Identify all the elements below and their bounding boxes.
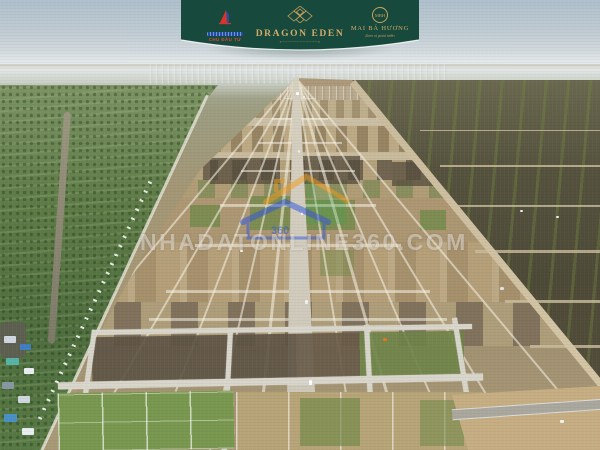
project-logo: DRAGON EDEN «────────────» [255, 6, 345, 44]
grass-plot [300, 398, 360, 446]
lattice-diamond [296, 16, 304, 23]
lattice-diamond [300, 11, 312, 21]
farm-hut-speck [556, 216, 559, 218]
vehicle-speck [298, 150, 300, 153]
building-speck [296, 92, 299, 95]
vehicle-speck [309, 380, 312, 385]
building-speck [303, 96, 305, 98]
house-roof [20, 344, 31, 350]
project-tagline: «────────────» [255, 40, 345, 44]
developer-caption: CHỦ ĐẦU TƯ [193, 37, 257, 42]
agency-name: MAI BÁ HƯƠNG [349, 25, 411, 32]
agency-tagline: Đơn vị phát triển [349, 33, 411, 38]
house-roof [18, 396, 30, 403]
brand-banner: CHỦ ĐẦU TƯ DRAGON EDEN «────────────» MB… [181, 0, 419, 58]
excavator-speck [383, 338, 387, 341]
aerial-photo: 360 NHADATONLINE360.COM CHỦ ĐẦU TƯ [0, 0, 600, 450]
farm-hut-speck [500, 287, 504, 290]
project-name: DRAGON EDEN [255, 29, 345, 39]
farm-hut-speck [520, 210, 523, 212]
circle-monogram-icon: MBH [372, 7, 388, 23]
house-roof [4, 336, 16, 343]
paddy-path [505, 300, 600, 303]
paddy-path [420, 130, 600, 131]
building-speck [560, 420, 564, 423]
monogram-letters: MBH [375, 13, 385, 18]
house-roof [24, 368, 34, 374]
house-roof [22, 428, 34, 435]
agency-logo: MBH MAI BÁ HƯƠNG Đơn vị phát triển [349, 7, 411, 38]
lattice-diamond [288, 11, 300, 21]
sail-base [219, 23, 231, 24]
developer-logo: CHỦ ĐẦU TƯ [193, 9, 257, 42]
house-roof [2, 382, 14, 389]
vehicle-speck [305, 300, 308, 304]
sail-logo-icon [218, 9, 232, 25]
watermark-site-text: NHADATONLINE360.COM [140, 229, 460, 256]
paddy-path [440, 165, 600, 167]
house-roof [4, 414, 17, 422]
lotus-lattice-icon [287, 6, 313, 23]
lawn-blocks [58, 390, 235, 450]
graded-mud-strip [92, 331, 465, 381]
developer-name-bar [207, 32, 243, 36]
paddy-path [455, 205, 600, 207]
house-roof [6, 358, 19, 365]
